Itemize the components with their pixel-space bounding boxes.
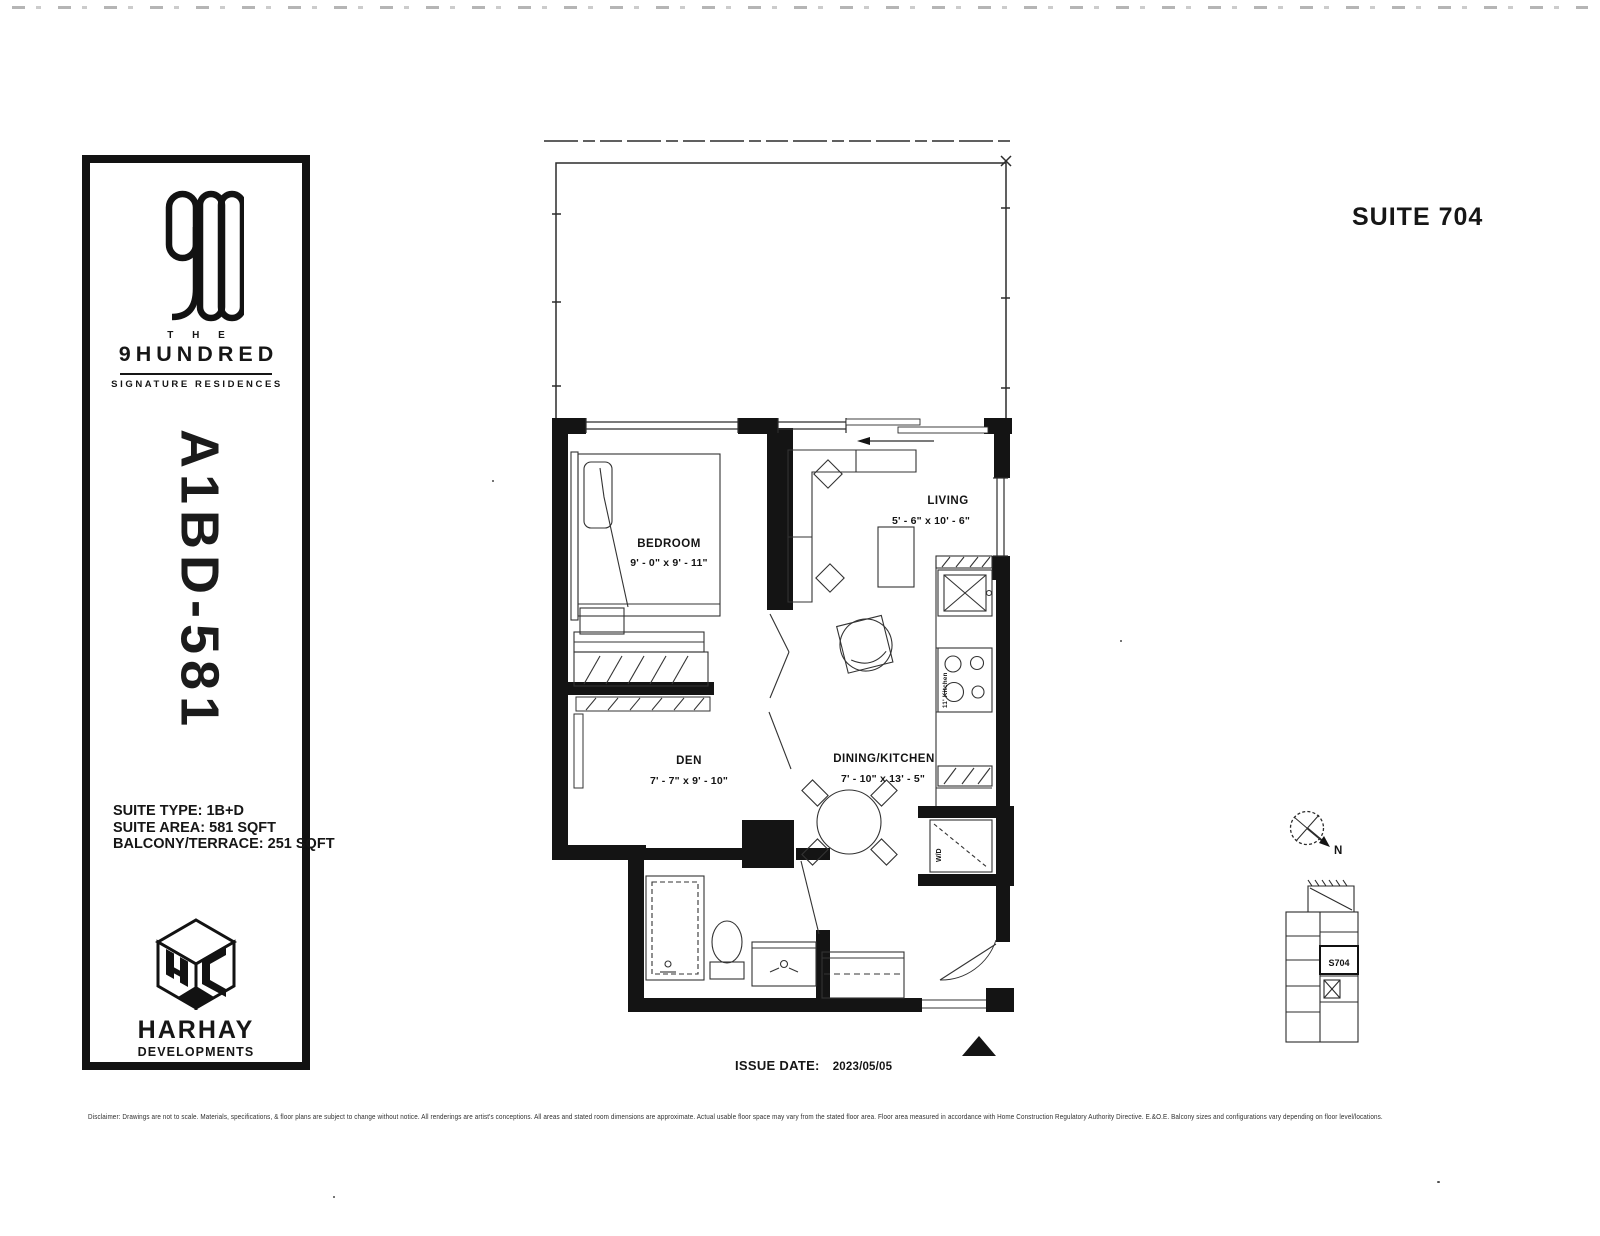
issue-date-value: 2023/05/05	[833, 1061, 893, 1073]
pillow-icon	[584, 462, 612, 528]
keyplan-unit-label: S704	[1328, 958, 1349, 968]
scan-speck	[492, 480, 494, 482]
logo-9-loop	[169, 194, 196, 258]
armchair-icon	[834, 613, 897, 676]
living-label: LIVING	[927, 495, 968, 507]
den-door-leaf	[769, 712, 791, 769]
dining-table-icon	[817, 790, 881, 854]
walls	[552, 418, 1014, 1012]
brand-name: 9HUNDRED	[90, 342, 302, 367]
issue-date-label: ISSUE DATE:	[735, 1058, 820, 1073]
developer-division: DEVELOPMENTS	[90, 1045, 302, 1059]
scan-speck	[1120, 640, 1122, 642]
laundry-closet: W/D	[930, 820, 992, 872]
suite-title: SUITE 704	[1352, 203, 1483, 232]
developer-name: HARHAY	[90, 1016, 302, 1045]
headboard	[571, 452, 578, 620]
scan-speck	[333, 1196, 335, 1198]
scan-speck	[1437, 1181, 1440, 1183]
bedroom-door-leaf	[770, 614, 789, 652]
bed-icon	[578, 454, 720, 616]
room-labels: BEDROOM 9' - 0" x 9' - 11" LIVING 5' - 6…	[630, 495, 970, 787]
suite-area: SUITE AREA: 581 SQFT	[113, 820, 335, 837]
bedroom-dims: 9' - 0" x 9' - 11"	[630, 557, 708, 569]
toilet-icon	[712, 921, 742, 963]
wd-label: W/D	[936, 848, 943, 862]
bench-icon	[580, 608, 624, 634]
harhay-logo-icon	[154, 918, 238, 1010]
entry-marker-triangle	[962, 1036, 996, 1056]
slider-panel	[846, 419, 920, 425]
brand-tagline: SIGNATURE RESIDENCES	[90, 379, 302, 390]
side-table-icon	[878, 527, 914, 587]
floor-plan-drawing: 11' Kitchen W/D	[540, 130, 1045, 1065]
keyplan: S704	[1286, 880, 1358, 1042]
slider-arrowhead	[857, 437, 870, 445]
kitchen-counter: 11' Kitchen	[936, 556, 992, 806]
sink-faucet-icon	[781, 961, 788, 968]
compass-icon: N	[1291, 812, 1343, 858]
den-dims: 7' - 7" x 9' - 10"	[650, 775, 728, 787]
slider-panel	[898, 427, 988, 433]
the-9hundred-logo-icon	[164, 189, 244, 323]
left-info-panel: T H E 9HUNDRED SIGNATURE RESIDENCES A1BD…	[82, 155, 310, 1070]
bedroom-label: BEDROOM	[637, 538, 701, 550]
issue-date-row: ISSUE DATE: 2023/05/05	[735, 1058, 892, 1073]
balcony-railing	[556, 163, 1006, 418]
suite-info-block: SUITE TYPE: 1B+D SUITE AREA: 581 SQFT BA…	[113, 803, 335, 853]
bedroom-door-leaf	[770, 652, 789, 698]
shower-icon	[646, 876, 704, 980]
floor-plan-page: T H E 9HUNDRED SIGNATURE RESIDENCES A1BD…	[0, 0, 1600, 1236]
dining-kitchen-dims: 7' - 10" x 13' - 5"	[841, 773, 925, 785]
suite-balcony: BALCONY/TERRACE: 251 SQFT	[113, 836, 335, 853]
logo-9-stem	[172, 227, 196, 317]
den-label: DEN	[676, 755, 702, 767]
bedroom-furniture	[571, 452, 720, 686]
windows	[586, 418, 1008, 556]
living-dims: 5' - 6" x 10' - 6"	[892, 515, 970, 527]
chair-icon	[871, 839, 897, 865]
north-label: N	[1334, 845, 1342, 857]
entry-door-leaf	[940, 944, 996, 980]
throw-pillow-icon	[814, 460, 842, 488]
bathroom-fixtures	[646, 876, 816, 986]
blanket-fold	[600, 468, 628, 607]
bathroom-door-leaf	[801, 861, 819, 934]
living-furniture	[788, 450, 916, 677]
brand-divider	[120, 373, 272, 375]
balcony-terrace	[544, 141, 1014, 418]
compass-and-keyplan: N S704	[1255, 790, 1425, 1060]
entry-closet-icon	[822, 952, 904, 998]
vanity-icon	[752, 942, 816, 986]
shower-control-icon	[665, 961, 671, 967]
shelf-icon	[574, 714, 583, 788]
kitchen-length-note: 11' Kitchen	[942, 672, 949, 708]
disclaimer-text: Disclaimer: Drawings are not to scale. M…	[88, 1112, 1383, 1121]
faucet-icon	[987, 591, 992, 596]
brand-the: T H E	[90, 330, 302, 341]
plan-code: A1BD-581	[169, 429, 231, 732]
dining-kitchen-label: DINING/KITCHEN	[833, 753, 935, 765]
scan-artifact-top	[12, 6, 1588, 9]
suite-type: SUITE TYPE: 1B+D	[113, 803, 335, 820]
throw-pillow-icon	[816, 564, 844, 592]
desk-icon	[576, 697, 710, 711]
interior-doors	[769, 614, 819, 934]
